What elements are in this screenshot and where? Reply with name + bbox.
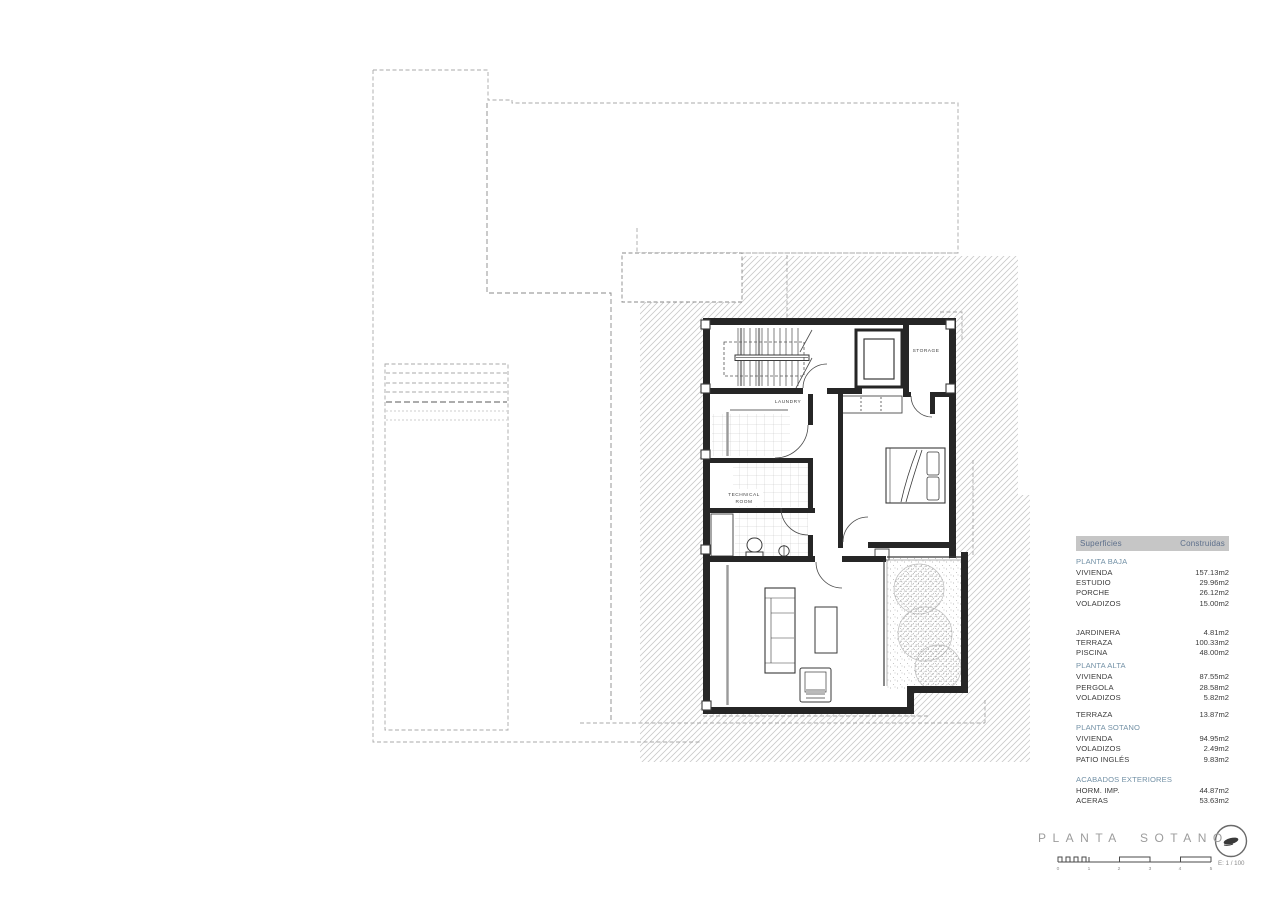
- scale-ratio-label: E: 1 / 100: [1218, 860, 1245, 867]
- svg-text:5: 5: [1210, 866, 1213, 872]
- row-label: VOLADIZOS: [1076, 744, 1121, 754]
- row-value: 100.33m2: [1195, 638, 1229, 648]
- row-label: VIVIENDA: [1076, 568, 1113, 578]
- svg-text:0: 0: [1057, 866, 1060, 872]
- table-row: PLANTA SOTANO: [1076, 722, 1229, 734]
- row-label: VOLADIZOS: [1076, 693, 1121, 703]
- bathroom-closet: [711, 514, 733, 556]
- table-row: TERRAZA 13.87m2: [1076, 710, 1229, 720]
- row-label: ACERAS: [1076, 796, 1108, 806]
- bed: [886, 448, 945, 503]
- svg-text:3: 3: [1149, 866, 1152, 872]
- row-label: HORM. IMP.: [1076, 786, 1120, 796]
- laundry-floor-tiles: [712, 414, 790, 456]
- row-value: 2.49m2: [1204, 744, 1229, 754]
- row-value: 44.87m2: [1199, 786, 1229, 796]
- surfaces-col1-header: Superficies: [1080, 539, 1122, 548]
- table-row: VOLADIZOS 2.49m2: [1076, 744, 1229, 754]
- row-label: PORCHE: [1076, 588, 1109, 598]
- table-row: PLANTA BAJA: [1076, 556, 1229, 568]
- row-value: 4.81m2: [1204, 628, 1229, 638]
- row-value: 53.63m2: [1199, 796, 1229, 806]
- table-row: VIVIENDA 94.95m2: [1076, 734, 1229, 744]
- elevator-shaft: [856, 330, 902, 387]
- row-value: 15.00m2: [1199, 599, 1229, 609]
- row-label: JARDINERA: [1076, 628, 1120, 638]
- table-row: PERGOLA 28.58m2: [1076, 683, 1229, 693]
- row-value: 28.58m2: [1199, 683, 1229, 693]
- sheet-title: PLANTA SOTANO: [1038, 831, 1229, 845]
- basement-plan: LAUNDRY TECHNICAL ROOM STORAGE: [701, 318, 968, 714]
- row-value: 26.12m2: [1199, 588, 1229, 598]
- table-row: PISCINA 48.00m2: [1076, 648, 1229, 658]
- svg-text:4: 4: [1179, 866, 1182, 872]
- setback-outline: [622, 253, 742, 302]
- tree: [894, 564, 944, 614]
- row-value: 94.95m2: [1199, 734, 1229, 744]
- table-row: PLANTA ALTA: [1076, 660, 1229, 672]
- table-row: HORM. IMP. 44.87m2: [1076, 786, 1229, 796]
- table-row: [1076, 609, 1229, 628]
- row-label: TERRAZA: [1076, 710, 1113, 720]
- storage-label: STORAGE: [913, 348, 940, 354]
- table-row: JARDINERA 4.81m2: [1076, 628, 1229, 638]
- row-label: TERRAZA: [1076, 638, 1113, 648]
- row-label: PLANTA BAJA: [1076, 556, 1127, 568]
- svg-text:1: 1: [1088, 866, 1091, 872]
- table-row: [1076, 765, 1229, 772]
- table-row: VOLADIZOS 15.00m2: [1076, 599, 1229, 609]
- row-label: PATIO INGLÉS: [1076, 755, 1129, 765]
- sofa: [765, 588, 795, 673]
- table-row: PORCHE 26.12m2: [1076, 588, 1229, 598]
- bathroom-floor-tiles: [735, 513, 808, 556]
- wardrobe: [841, 396, 902, 413]
- row-value: 29.96m2: [1199, 578, 1229, 588]
- surfaces-table-header: Superficies Construidas: [1076, 536, 1229, 551]
- toilet: [747, 538, 762, 552]
- coffee-table: [815, 607, 837, 653]
- row-label: VIVIENDA: [1076, 734, 1113, 744]
- laundry-label: LAUNDRY: [775, 399, 802, 405]
- surfaces-table: Superficies Construidas PLANTA BAJA VIVI…: [1076, 536, 1229, 806]
- technical-room-label2: ROOM: [736, 499, 753, 505]
- tree: [915, 645, 961, 691]
- pillow: [927, 452, 939, 475]
- table-row: ACERAS 53.63m2: [1076, 796, 1229, 806]
- row-label: PLANTA ALTA: [1076, 660, 1126, 672]
- table-row: VIVIENDA 87.55m2: [1076, 672, 1229, 682]
- technical-room-label: TECHNICAL: [728, 492, 760, 498]
- row-label: PISCINA: [1076, 648, 1107, 658]
- row-value: 9.83m2: [1204, 755, 1229, 765]
- table-row: [1076, 703, 1229, 710]
- floorplan-sheet: LAUNDRY TECHNICAL ROOM STORAGE 0 1 2 3 4…: [0, 0, 1280, 905]
- row-label: PLANTA SOTANO: [1076, 722, 1140, 734]
- scale-ticks: 0 1 2 3 4 5: [1057, 866, 1213, 872]
- row-label: ESTUDIO: [1076, 578, 1111, 588]
- svg-text:2: 2: [1118, 866, 1121, 872]
- table-row: VOLADIZOS 5.82m2: [1076, 693, 1229, 703]
- table-row: VIVIENDA 157.13m2: [1076, 568, 1229, 578]
- row-value: 5.82m2: [1204, 693, 1229, 703]
- table-row: ESTUDIO 29.96m2: [1076, 578, 1229, 588]
- row-value: 157.13m2: [1195, 568, 1229, 578]
- row-value: 13.87m2: [1199, 710, 1229, 720]
- row-value: 87.55m2: [1199, 672, 1229, 682]
- row-label: VIVIENDA: [1076, 672, 1113, 682]
- table-row: ACABADOS EXTERIORES: [1076, 774, 1229, 786]
- row-label: VOLADIZOS: [1076, 599, 1121, 609]
- row-label: ACABADOS EXTERIORES: [1076, 774, 1172, 786]
- pool-outline: [385, 364, 508, 730]
- pillow: [927, 477, 939, 500]
- site-boundary-lines-dark: [487, 103, 611, 723]
- table-row: PATIO INGLÉS 9.83m2: [1076, 755, 1229, 765]
- table-row: TERRAZA 100.33m2: [1076, 638, 1229, 648]
- surfaces-rows: PLANTA BAJA VIVIENDA 157.13m2 ESTUDIO 29…: [1076, 551, 1229, 806]
- surfaces-col2-header: Construidas: [1180, 539, 1225, 548]
- row-value: 48.00m2: [1199, 648, 1229, 658]
- patio-garden: [887, 558, 966, 691]
- scale-bar: 0 1 2 3 4 5 E: 1 / 100: [1057, 857, 1245, 872]
- row-label: PERGOLA: [1076, 683, 1114, 693]
